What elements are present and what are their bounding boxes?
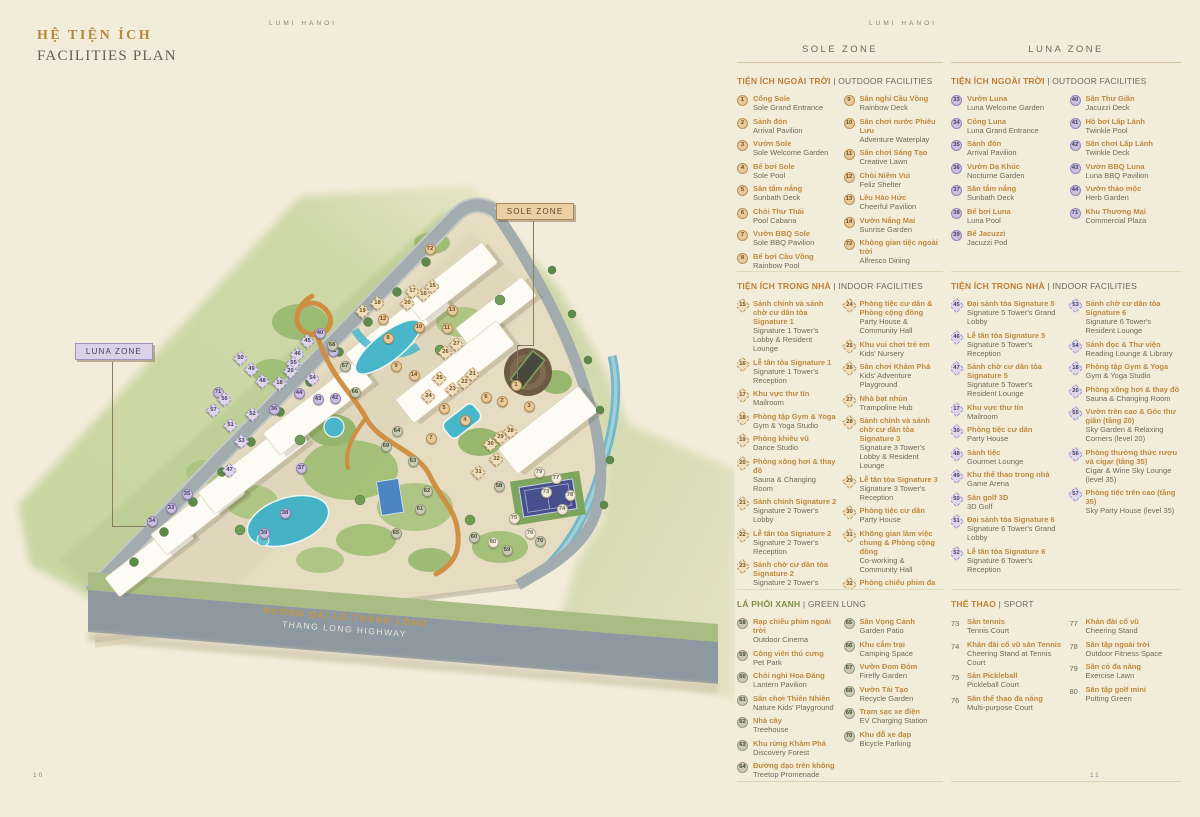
legend-subcolumn: 53Sảnh chờ cư dân tòa Signature 6Signatu… xyxy=(1070,299,1182,578)
facility-name-en: Creative Lawn xyxy=(860,157,928,166)
facility-name-vi: Lễ tân tòa Signature 5 xyxy=(967,331,1063,340)
facility-name-vi: Vườn Sole xyxy=(753,139,828,148)
facility-number-badge: 22 xyxy=(737,529,753,556)
facility-name-en: Gym & Yoga Studio xyxy=(1086,371,1169,380)
facility-number-badge: 77 xyxy=(1070,617,1086,635)
facility-number-badge: 24 xyxy=(844,299,860,335)
facility-name-en: Signature 3 Tower's Reception xyxy=(860,484,944,502)
section-title-vi: LÁ PHỔI XANH xyxy=(737,599,800,609)
facility-labels: Khu thể thao trong nhàGame Arena xyxy=(967,470,1050,488)
facility-name-vi: Khu vui chơi trẻ em xyxy=(860,340,930,349)
facility-number-badge: 18 xyxy=(737,412,753,430)
facility-item: 31Không gian làm việc chung & Phòng cộng… xyxy=(844,529,944,574)
facility-item: 64Đường dạo trên khôngTreetop Promenade xyxy=(737,761,837,779)
facility-name-en: Recycle Garden xyxy=(860,694,914,703)
facility-name-vi: Sảnh chính Signature 2 xyxy=(753,497,837,506)
facility-number-badge: 20 xyxy=(737,457,753,493)
section-title-en: | GREEN LUNG xyxy=(800,599,866,609)
facility-number-badge: 11 xyxy=(844,148,860,166)
facility-item: 58Rạp chiếu phim ngoài trờiOutdoor Cinem… xyxy=(737,617,837,644)
facility-item: 50Sân golf 3D3D Golf xyxy=(951,493,1063,511)
facility-name-vi: Sân tắm nắng xyxy=(967,184,1016,193)
facility-name-en: Party House & Community Hall xyxy=(860,317,944,335)
facility-item: 77Khán đài cổ vũCheering Stand xyxy=(1070,617,1182,635)
facility-name-en: Pet Park xyxy=(753,658,824,667)
facility-item: 16Lễ tân tòa Signature 1Signature 1 Towe… xyxy=(737,358,837,385)
facility-item: 1Cổng SoleSole Grand Entrance xyxy=(737,94,837,112)
facility-labels: Sân tập golf miniPutting Green xyxy=(1086,685,1146,703)
facility-labels: Sân tennisTennis Court xyxy=(967,617,1009,635)
facility-name-vi: Rạp chiếu phim ngoài trời xyxy=(753,617,837,635)
legend-subcolumn: 65Sân Vọng CảnhGarden Patio66Khu cắm trạ… xyxy=(844,617,944,779)
legend-section: TIỆN ÍCH TRONG NHÀ | INDOOR FACILITIES45… xyxy=(951,271,1181,589)
facility-number-badge: 68 xyxy=(844,685,860,703)
facility-name-vi: Sân chơi Sáng Tạo xyxy=(860,148,928,157)
map-marker: 47 xyxy=(221,462,237,478)
facility-name-vi: Sân chơi Lấp Lánh xyxy=(1086,139,1153,148)
facility-item: 47Sảnh chờ cư dân tòa Signature 5Signatu… xyxy=(951,362,1063,398)
facility-name-vi: Sân chơi Thiên Nhiên xyxy=(753,694,834,703)
facility-item: 32Phòng chiếu phim đa năngMulti-media Ro… xyxy=(844,578,944,589)
facility-labels: Phòng tiệc cư dânParty House xyxy=(860,506,925,524)
facility-name-vi: Phòng tiệc cư dân & Phòng cộng đồng xyxy=(860,299,944,317)
facility-item: 66Khu cắm trạiCamping Space xyxy=(844,640,944,658)
facility-item: 43Vườn BBQ LunaLuna BBQ Pavilion xyxy=(1070,162,1182,180)
facility-name-en: Sole Welcome Garden xyxy=(753,148,828,157)
facility-number-badge: 50 xyxy=(951,493,967,511)
facility-name-vi: Khu Thương Mại xyxy=(1086,207,1147,216)
facility-item: 17Khu vực thư tínMailroom xyxy=(951,403,1063,421)
facility-name-vi: Vườn Luna xyxy=(967,94,1044,103)
facility-name-en: Game Arena xyxy=(967,479,1050,488)
sole-zone-leader-line xyxy=(517,345,518,379)
facility-item: 67Vườn Đom ĐómFirefly Garden xyxy=(844,662,944,680)
facility-name-en: Putting Green xyxy=(1086,694,1146,703)
facility-name-en: Signature 6 Tower's Reception xyxy=(967,556,1063,574)
facility-labels: Sảnh tiệcGourmet Lounge xyxy=(967,448,1023,466)
facility-number-badge: 61 xyxy=(737,694,753,712)
facility-name-vi: Phòng khiêu vũ xyxy=(753,434,809,443)
section-title-vi: TIỆN ÍCH TRONG NHÀ xyxy=(737,281,831,291)
facility-item: 7Vườn BBQ SoleSole BBQ Pavilion xyxy=(737,229,837,247)
facility-labels: Phòng tiệc trên cao (tầng 35)Sky Party H… xyxy=(1086,488,1182,515)
map-marker: 63 xyxy=(408,456,419,467)
facility-labels: Sân chơi Thiên NhiênNature Kids' Playgro… xyxy=(753,694,834,712)
facility-labels: Vườn Tái TạoRecycle Garden xyxy=(860,685,914,703)
facility-name-en: Discovery Forest xyxy=(753,748,826,757)
map-marker: 45 xyxy=(299,333,315,349)
map-marker: 69 xyxy=(381,441,392,452)
facility-name-vi: Cổng Sole xyxy=(753,94,823,103)
facility-number-badge: 6 xyxy=(737,207,753,225)
facility-labels: Vườn BBQ SoleSole BBQ Pavilion xyxy=(753,229,814,247)
facility-name-en: Signature 6 Tower's Resident Lounge xyxy=(1086,317,1182,335)
facility-name-vi: Khán đài cổ vũ sân Tennis xyxy=(967,640,1063,649)
facility-number-badge: 30 xyxy=(951,425,967,443)
facility-item: 30Phòng tiệc cư dânParty House xyxy=(844,506,944,524)
facility-number-badge: 30 xyxy=(844,506,860,524)
facility-item: 53Sảnh chờ cư dân tòa Signature 6Signatu… xyxy=(1070,299,1182,335)
facility-name-en: Commercial Plaza xyxy=(1086,216,1147,225)
facility-name-en: Kids' Nursery xyxy=(860,349,930,358)
section-title-vi: TIỆN ÍCH NGOÀI TRỜI xyxy=(737,76,831,86)
facility-name-vi: Sân thể thao đa năng xyxy=(967,694,1043,703)
sole-zone-leader-line xyxy=(533,221,534,345)
facility-number-badge: 14 xyxy=(844,216,860,234)
facility-number-badge: 20 xyxy=(1070,385,1086,403)
facility-item: 27Nhà bạt nhúnTrampoline Hub xyxy=(844,394,944,412)
facility-name-en: Garden Patio xyxy=(860,626,915,635)
facility-name-vi: Sân Thư Giãn xyxy=(1086,94,1135,103)
facility-labels: Sân chơi Khám PháKids' Adventure Playgro… xyxy=(860,362,944,389)
brand-wordmark: LUMI HANOI xyxy=(858,20,948,27)
facility-labels: Công viên thú cưngPet Park xyxy=(753,649,824,667)
facility-number-badge: 62 xyxy=(737,716,753,734)
facility-name-en: Gourmet Lounge xyxy=(967,457,1023,466)
facility-name-en: Jacuzzi Deck xyxy=(1086,103,1135,112)
facility-number-badge: 55 xyxy=(1070,407,1086,443)
facility-name-en: Signature 2 Tower's Resident Lounge xyxy=(753,578,837,589)
map-marker: 13 xyxy=(447,305,458,316)
facility-number-badge: 75 xyxy=(951,671,967,689)
facility-name-vi: Sân cỏ đa năng xyxy=(1086,662,1141,671)
legend-subcolumn: 58Rạp chiếu phim ngoài trờiOutdoor Cinem… xyxy=(737,617,837,779)
map-marker: 52 xyxy=(244,406,260,422)
map-marker: 75 xyxy=(509,513,520,524)
facility-name-en: Mailroom xyxy=(967,412,1023,421)
facility-number-badge: 63 xyxy=(737,739,753,757)
facility-name-en: Mailroom xyxy=(753,398,809,407)
facility-item: 78Sân tập ngoài trờiOutdoor Fitness Spac… xyxy=(1070,640,1182,658)
facility-labels: Hồ bơi Lấp LánhTwinkle Pool xyxy=(1086,117,1146,135)
facility-item: 41Hồ bơi Lấp LánhTwinkle Pool xyxy=(1070,117,1182,135)
facility-number-badge: 9 xyxy=(844,94,860,112)
map-marker: 79 xyxy=(534,467,545,478)
facility-name-vi: Phòng tiệc trên cao (tầng 35) xyxy=(1086,488,1182,506)
facility-name-en: Trampoline Hub xyxy=(860,403,913,412)
facility-number-badge: 33 xyxy=(951,94,967,112)
map-marker: 31 xyxy=(470,464,486,480)
facility-name-vi: Chòi nghỉ Hoa Đăng xyxy=(753,671,825,680)
legend-sections-sole: TIỆN ÍCH NGOÀI TRỜI | OUTDOOR FACILITIES… xyxy=(737,63,943,779)
facility-name-vi: Chòi Thư Thái xyxy=(753,207,804,216)
facility-name-vi: Sảnh đọc & Thư viện xyxy=(1086,340,1173,349)
facility-item: 17Khu vực thư tínMailroom xyxy=(737,389,837,407)
facility-labels: Cổng SoleSole Grand Entrance xyxy=(753,94,823,112)
map-marker: 32 xyxy=(488,451,504,467)
facility-name-vi: Sân tập ngoài trời xyxy=(1086,640,1163,649)
facility-item: 42Sân chơi Lấp LánhTwinkle Deck xyxy=(1070,139,1182,157)
facility-number-badge: 58 xyxy=(737,617,753,644)
legend-section: TIỆN ÍCH NGOÀI TRỜI | OUTDOOR FACILITIES… xyxy=(951,67,1181,271)
map-marker: 65 xyxy=(391,528,402,539)
map-marker: 39 xyxy=(259,528,270,539)
facility-name-vi: Vườn thảo mộc xyxy=(1086,184,1142,193)
facility-labels: Sân tập ngoài trờiOutdoor Fitness Space xyxy=(1086,640,1163,658)
facility-number-badge: 26 xyxy=(844,362,860,389)
facility-item: 54Sảnh đọc & Thư việnReading Lounge & Li… xyxy=(1070,340,1182,358)
map-marker: 7 xyxy=(426,433,437,444)
facility-name-en: Sauna & Changing Room xyxy=(1086,394,1180,403)
facility-name-en: Herb Garden xyxy=(1086,193,1142,202)
facility-labels: Phòng tiệc cư dân & Phòng cộng đồngParty… xyxy=(860,299,944,335)
facility-number-badge: 51 xyxy=(951,515,967,542)
facility-labels: Sảnh chờ cư dân tòa Signature 2Signature… xyxy=(753,560,837,589)
facility-labels: Sân PickleballPickleball Court xyxy=(967,671,1019,689)
facility-item: 39Bể JacuzziJacuzzi Pod xyxy=(951,229,1063,247)
facility-number-badge: 38 xyxy=(951,207,967,225)
facility-labels: Lễ tân tòa Signature 3Signature 3 Tower'… xyxy=(860,475,944,502)
facility-labels: Không gian tiệc ngoài trờiAlfresco Dinin… xyxy=(860,238,944,265)
facility-item: 74Khán đài cổ vũ sân TennisCheering Stan… xyxy=(951,640,1063,667)
facility-number-badge: 32 xyxy=(844,578,860,589)
facility-item: 79Sân cỏ đa năngExercise Lawn xyxy=(1070,662,1182,680)
map-marker: 42 xyxy=(330,393,341,404)
section-columns: 73Sân tennisTennis Court74Khán đài cổ vũ… xyxy=(951,617,1181,716)
facility-labels: Bể bơi LunaLuna Pool xyxy=(967,207,1011,225)
facility-number-badge: 1 xyxy=(737,94,753,112)
facility-name-vi: Cổng Luna xyxy=(967,117,1039,126)
facility-name-vi: Trạm sạc xe điện xyxy=(860,707,928,716)
facility-name-en: Rainbow Deck xyxy=(860,103,929,112)
facility-item: 73Sân tennisTennis Court xyxy=(951,617,1063,635)
facility-number-badge: 48 xyxy=(951,448,967,466)
facility-number-badge: 65 xyxy=(844,617,860,635)
facility-item: 20Phòng xông hơi & thay đồSauna & Changi… xyxy=(737,457,837,493)
map-marker: 34 xyxy=(147,516,158,527)
facility-labels: Lễ tân tòa Signature 1Signature 1 Tower'… xyxy=(753,358,837,385)
facility-labels: Sân Thư GiãnJacuzzi Deck xyxy=(1086,94,1135,112)
facility-name-en: Co-working & Community Hall xyxy=(860,556,944,574)
facility-labels: Sân chơi Lấp LánhTwinkle Deck xyxy=(1086,139,1153,157)
facility-name-en: 3D Golf xyxy=(967,502,1008,511)
facility-number-badge: 64 xyxy=(737,761,753,779)
facility-labels: Sảnh đọc & Thư việnReading Lounge & Libr… xyxy=(1086,340,1173,358)
facility-number-badge: 53 xyxy=(1070,299,1086,335)
facility-labels: Sân Vọng CảnhGarden Patio xyxy=(860,617,915,635)
legend-subcolumn: 9Sân nghỉ Cầu VồngRainbow Deck10Sân chơi… xyxy=(844,94,944,271)
facility-name-vi: Lễ tân tòa Signature 6 xyxy=(967,547,1063,556)
facility-name-en: Rainbow Pool xyxy=(753,261,814,270)
map-marker: 58 xyxy=(494,481,505,492)
facility-item: 38Bể bơi LunaLuna Pool xyxy=(951,207,1063,225)
facility-labels: Sân thể thao đa năngMulti-purpose Court xyxy=(967,694,1043,712)
facility-labels: Sân tắm nắngSunbath Deck xyxy=(967,184,1016,202)
facility-number-badge: 19 xyxy=(737,434,753,452)
map-marker: 6 xyxy=(481,392,492,403)
facility-item: 37Sân tắm nắngSunbath Deck xyxy=(951,184,1063,202)
luna-zone-map-label: LUNA ZONE xyxy=(75,343,153,360)
legend-column-sole: SOLE ZONE TIỆN ÍCH NGOÀI TRỜI | OUTDOOR … xyxy=(737,44,943,789)
map-marker: 19 xyxy=(354,303,370,319)
map-marker: 10 xyxy=(414,322,425,333)
section-header: TIỆN ÍCH NGOÀI TRỜI | OUTDOOR FACILITIES xyxy=(737,76,943,86)
facility-labels: Vườn Nắng MaiSunrise Garden xyxy=(860,216,916,234)
facility-labels: Cổng LunaLuna Grand Entrance xyxy=(967,117,1039,135)
facility-name-en: Tennis Court xyxy=(967,626,1009,635)
facility-labels: Phòng xông hơi & thay đồSauna & Changing… xyxy=(1086,385,1180,403)
facility-labels: Lều Háo HứcCheerful Pavilion xyxy=(860,193,917,211)
facility-name-en: Luna BBQ Pavilion xyxy=(1086,171,1149,180)
legend-subcolumn: 45Đại sảnh tòa Signature 5Signature 5 To… xyxy=(951,299,1063,578)
facility-labels: Phòng xông hơi & thay đồSauna & Changing… xyxy=(753,457,837,493)
facility-name-en: Signature 3 Tower's Lobby & Resident Lou… xyxy=(860,443,944,470)
facility-name-vi: Sân Vọng Cảnh xyxy=(860,617,915,626)
facility-name-en: Cheering Stand at Tennis Court xyxy=(967,649,1063,667)
facility-name-vi: Khu đỗ xe đạp xyxy=(860,730,912,739)
facility-item: 26Sân chơi Khám PháKids' Adventure Playg… xyxy=(844,362,944,389)
page-title-vi: HỆ TIỆN ÍCH xyxy=(37,28,177,44)
facility-number-badge: 5 xyxy=(737,184,753,202)
facility-name-en: Sunrise Garden xyxy=(860,225,916,234)
facility-item: 14Vườn Nắng MaiSunrise Garden xyxy=(844,216,944,234)
facility-name-en: Signature 5 Tower's Resident Lounge xyxy=(967,380,1063,398)
facility-name-vi: Sảnh chờ cư dân tòa Signature 2 xyxy=(753,560,837,578)
facility-name-vi: Lễ tân tòa Signature 3 xyxy=(860,475,944,484)
facility-labels: Nhà câyTreehouse xyxy=(753,716,789,734)
facility-name-vi: Sảnh chờ cư dân tòa Signature 6 xyxy=(1086,299,1182,317)
facility-name-en: Exercise Lawn xyxy=(1086,671,1141,680)
legend-section: TIỆN ÍCH NGOÀI TRỜI | OUTDOOR FACILITIES… xyxy=(737,67,943,271)
facility-name-en: Luna Grand Entrance xyxy=(967,126,1039,135)
legend-subcolumn: 33Vườn LunaLuna Welcome Garden34Cổng Lun… xyxy=(951,94,1063,252)
map-marker: 25 xyxy=(431,370,447,386)
legend-section: LÁ PHỔI XANH | GREEN LUNG58Rạp chiếu phi… xyxy=(737,589,943,779)
section-title-en: | OUTDOOR FACILITIES xyxy=(831,76,933,86)
map-marker: 61 xyxy=(415,504,426,515)
facility-number-badge: 12 xyxy=(844,171,860,189)
facility-number-badge: 78 xyxy=(1070,640,1086,658)
facility-labels: Phòng chiếu phim đa năngMulti-media Room xyxy=(860,578,944,589)
facility-item: 63Khu rừng Khám PháDiscovery Forest xyxy=(737,739,837,757)
facility-number-badge: 8 xyxy=(737,252,753,270)
facility-name-en: Sole Grand Entrance xyxy=(753,103,823,112)
facility-name-vi: Bể Jacuzzi xyxy=(967,229,1007,238)
facility-labels: Phòng tập Gym & YogaGym & Yoga Studio xyxy=(1086,362,1169,380)
brochure-spread: SOLE ZONE LUNA ZONE ĐƯỜNG ĐẠI LỘ THĂNG L… xyxy=(0,0,1200,817)
facility-name-vi: Khu vực thư tín xyxy=(967,403,1023,412)
facility-name-en: Cigar & Wine Sky Lounge (level 35) xyxy=(1086,466,1182,484)
facility-number-badge: 66 xyxy=(844,640,860,658)
facility-number-badge: 60 xyxy=(737,671,753,689)
facility-item: 49Khu thể thao trong nhàGame Arena xyxy=(951,470,1063,488)
facility-name-vi: Sảnh tiệc xyxy=(967,448,1023,457)
map-marker: 2 xyxy=(497,396,508,407)
facility-name-vi: Lễ tân tòa Signature 1 xyxy=(753,358,837,367)
section-title-en: | INDOOR FACILITIES xyxy=(1045,281,1137,291)
facility-name-en: Arrival Pavilion xyxy=(753,126,803,135)
legend-sections-luna: TIỆN ÍCH NGOÀI TRỜI | OUTDOOR FACILITIES… xyxy=(951,63,1181,749)
facility-name-en: Signature 1 Tower's Lobby & Resident Lou… xyxy=(753,326,837,353)
facility-name-vi: Sân golf 3D xyxy=(967,493,1008,502)
facility-number-badge: 17 xyxy=(951,403,967,421)
luna-zone-leader-line xyxy=(112,526,146,527)
facility-number-badge: 46 xyxy=(951,331,967,358)
facility-number-badge: 17 xyxy=(737,389,753,407)
facility-labels: Vườn LunaLuna Welcome Garden xyxy=(967,94,1044,112)
legend-subcolumn: 77Khán đài cổ vũCheering Stand78Sân tập … xyxy=(1070,617,1182,716)
facility-item: 75Sân PickleballPickleball Court xyxy=(951,671,1063,689)
facility-number-badge: 7 xyxy=(737,229,753,247)
facility-number-badge: 36 xyxy=(951,162,967,180)
facility-name-en: Sunbath Deck xyxy=(753,193,802,202)
facility-number-badge: 72 xyxy=(844,238,860,265)
facility-labels: Lễ tân tòa Signature 5Signature 5 Tower'… xyxy=(967,331,1063,358)
facility-name-vi: Sân Pickleball xyxy=(967,671,1019,680)
map-overlay: SOLE ZONE LUNA ZONE ĐƯỜNG ĐẠI LỘ THĂNG L… xyxy=(0,0,735,817)
facility-labels: Phòng tập Gym & YogaGym & Yoga Studio xyxy=(753,412,836,430)
section-header: TIỆN ÍCH NGOÀI TRỜI | OUTDOOR FACILITIES xyxy=(951,76,1181,86)
map-marker: 53 xyxy=(233,433,249,449)
facility-name-vi: Sảnh đón xyxy=(753,117,803,126)
facility-name-vi: Nhà bạt nhún xyxy=(860,394,913,403)
facility-name-en: Sauna & Changing Room xyxy=(753,475,837,493)
facility-item: 22Lễ tân tòa Signature 2Signature 2 Towe… xyxy=(737,529,837,556)
facility-item: 80Sân tập golf miniPutting Green xyxy=(1070,685,1182,703)
facility-number-badge: 10 xyxy=(844,117,860,144)
map-marker: 9 xyxy=(391,361,402,372)
facility-item: 29Lễ tân tòa Signature 3Signature 3 Towe… xyxy=(844,475,944,502)
facility-name-vi: Lễ tân tòa Signature 2 xyxy=(753,529,837,538)
facility-name-en: Signature 5 Tower's Reception xyxy=(967,340,1063,358)
facility-item: 6Chòi Thư TháiPool Cabana xyxy=(737,207,837,225)
legend-subcolumn: 15Sảnh chính và sảnh chờ cư dân tòa Sign… xyxy=(737,299,837,589)
section-header: THỂ THAO | SPORT xyxy=(951,599,1181,609)
facility-number-badge: 45 xyxy=(951,299,967,326)
facility-item: 45Đại sảnh tòa Signature 5Signature 5 To… xyxy=(951,299,1063,326)
facility-name-vi: Phòng thưởng thức rượu và cigar (tầng 35… xyxy=(1086,448,1182,466)
facility-item: 18Phòng tập Gym & YogaGym & Yoga Studio xyxy=(737,412,837,430)
map-marker: 24 xyxy=(420,388,436,404)
map-marker: 5 xyxy=(439,403,450,414)
facility-name-en: Signature 1 Tower's Reception xyxy=(753,367,837,385)
facility-item: 59Công viên thú cưngPet Park xyxy=(737,649,837,667)
facility-item: 24Phòng tiệc cư dân & Phòng cộng đồngPar… xyxy=(844,299,944,335)
facility-name-vi: Sân tập golf mini xyxy=(1086,685,1146,694)
facility-item: 19Phòng khiêu vũDance Studio xyxy=(737,434,837,452)
facility-number-badge: 43 xyxy=(1070,162,1086,180)
map-marker: 40 xyxy=(315,328,326,339)
section-columns: 45Đại sảnh tòa Signature 5Signature 5 To… xyxy=(951,299,1181,578)
facility-item: 4Bể bơi SoleSole Pool xyxy=(737,162,837,180)
facility-name-vi: Sảnh đón xyxy=(967,139,1017,148)
facility-number-badge: 40 xyxy=(1070,94,1086,112)
facility-number-badge: 16 xyxy=(737,358,753,385)
facility-name-vi: Vườn trên cao & Góc thư giãn (tầng 20) xyxy=(1086,407,1182,425)
facility-name-en: Camping Space xyxy=(860,649,913,658)
facility-number-badge: 44 xyxy=(1070,184,1086,202)
facility-item: 56Phòng thưởng thức rượu và cigar (tầng … xyxy=(1070,448,1182,484)
facility-number-badge: 2 xyxy=(737,117,753,135)
facility-number-badge: 39 xyxy=(951,229,967,247)
map-marker: 4 xyxy=(460,415,471,426)
facility-number-badge: 4 xyxy=(737,162,753,180)
facility-number-badge: 3 xyxy=(737,139,753,157)
facility-labels: Vườn SoleSole Welcome Garden xyxy=(753,139,828,157)
facility-name-vi: Vườn BBQ Sole xyxy=(753,229,814,238)
map-marker: 70 xyxy=(535,536,546,547)
facility-item: 15Sảnh chính và sảnh chờ cư dân tòa Sign… xyxy=(737,299,837,353)
map-marker: 67 xyxy=(340,361,351,372)
section-columns: 1Cổng SoleSole Grand Entrance2Sảnh đónAr… xyxy=(737,94,943,271)
facility-name-en: Sunbath Deck xyxy=(967,193,1016,202)
facility-name-en: Pool Cabana xyxy=(753,216,804,225)
facility-name-en: Jacuzzi Pod xyxy=(967,238,1007,247)
facility-name-en: Signature 5 Tower's Grand Lobby xyxy=(967,308,1063,326)
facility-number-badge: 27 xyxy=(844,394,860,412)
facility-item: 30Phòng tiệc cư dânParty House xyxy=(951,425,1063,443)
facility-number-badge: 52 xyxy=(951,547,967,574)
